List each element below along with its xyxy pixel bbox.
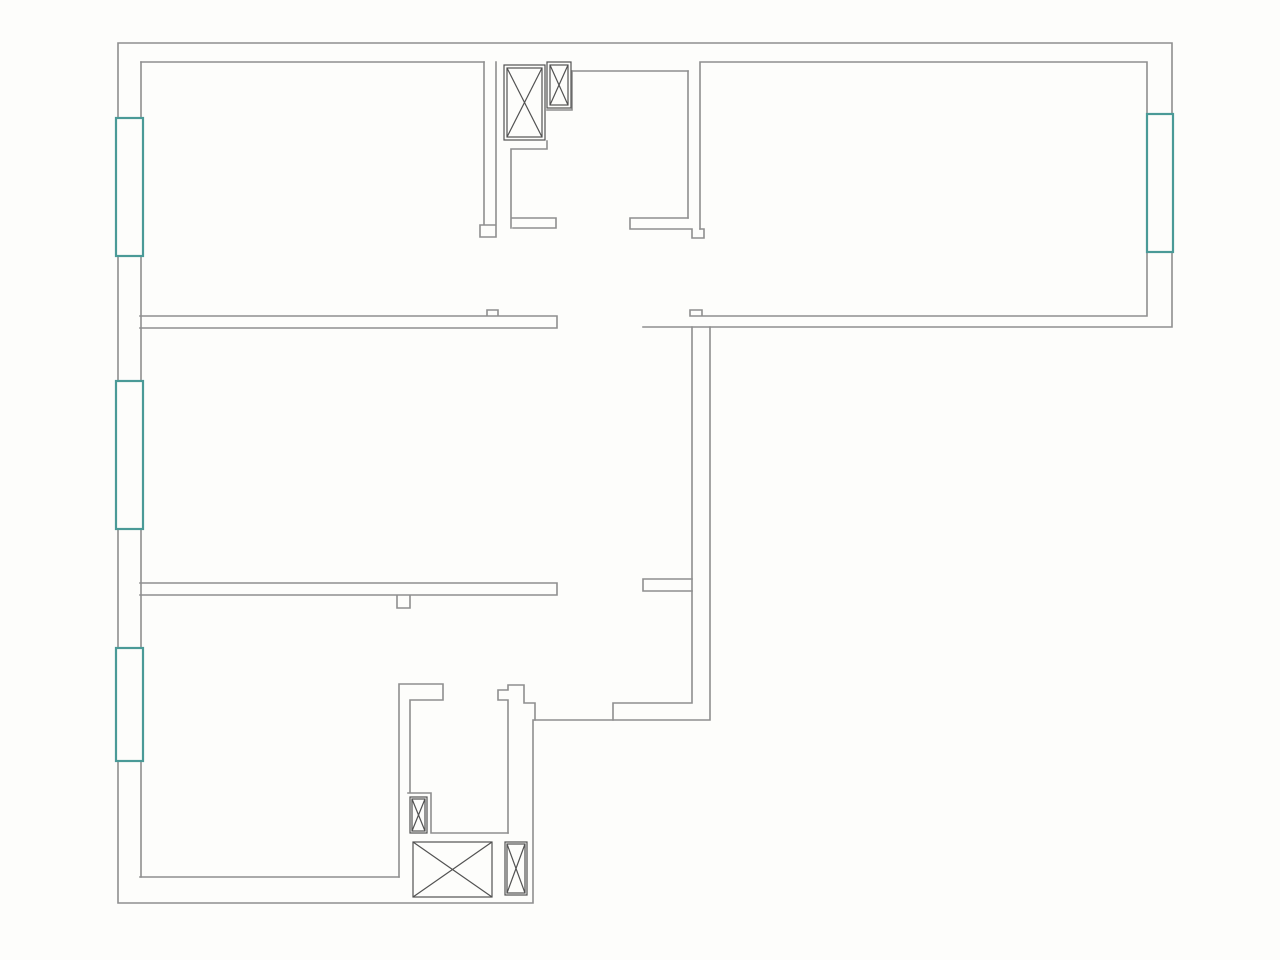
wall-band-middle-bottom	[140, 583, 557, 608]
entry-niche-wall	[511, 141, 556, 228]
top-right-room-walls	[688, 62, 1147, 316]
window-right	[1147, 114, 1173, 252]
top-right-room-door-jamb	[630, 218, 704, 238]
floor-plan-page	[0, 0, 1280, 960]
wall-band-topleft-middle	[140, 310, 557, 328]
bathroom-right-wall	[498, 685, 535, 833]
floor-plan-drawing	[0, 0, 1280, 960]
window-top-left	[116, 118, 143, 256]
apartment-outline	[118, 43, 1172, 903]
hall-right-wall-inner	[613, 327, 692, 720]
shaft-box-entry-small	[547, 62, 571, 108]
shaft-box-bottom-narrow	[505, 842, 527, 895]
window-middle-left	[116, 381, 143, 529]
shaft-box-entry-large	[504, 65, 545, 140]
window-bottom-left	[116, 648, 143, 761]
floor-plan-svg	[0, 0, 1280, 960]
top-left-room-right-wall	[480, 62, 496, 237]
shaft-box-bottom-large	[413, 842, 492, 897]
hall-wall-arm	[643, 579, 692, 591]
shaft-box-bath-small	[410, 797, 427, 833]
